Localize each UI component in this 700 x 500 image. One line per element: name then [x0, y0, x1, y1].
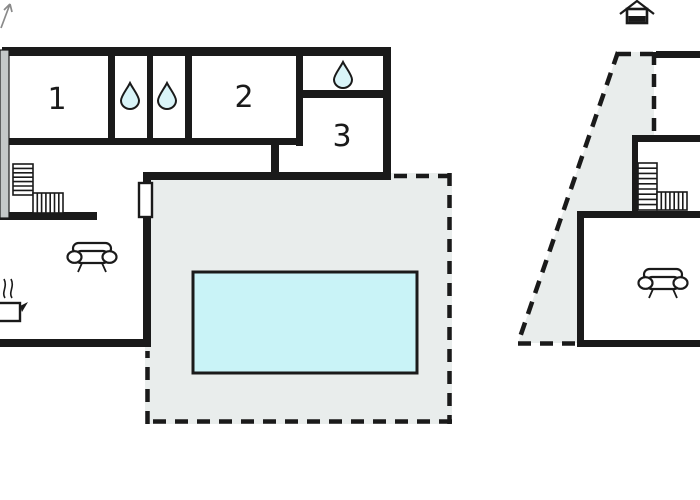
- swimming-pool: [193, 272, 417, 373]
- water-drop-icon: [334, 62, 352, 88]
- water-drop-icon: [158, 83, 176, 109]
- cooking-pot-icon: [0, 279, 28, 321]
- sofa-icon: [68, 243, 117, 272]
- water-drop-icon: [121, 83, 139, 109]
- cut-wall-strip: [0, 50, 9, 218]
- room-label-1: 1: [47, 85, 66, 115]
- sofa-icon: [639, 269, 688, 298]
- north-house-icon: [620, 1, 654, 23]
- staircase-icon: [638, 163, 687, 210]
- floor-plan-drawing: [0, 0, 700, 500]
- floor-plan-canvas: 1 2 3: [0, 0, 700, 500]
- upper-floor-plan: [518, 1, 700, 347]
- staircase-icon: [13, 164, 63, 213]
- north-arrow-icon: [1, 4, 12, 28]
- terrace-door: [139, 183, 152, 217]
- room-label-2: 2: [234, 83, 253, 113]
- ground-floor-plan: [0, 4, 452, 424]
- room-label-3: 3: [332, 122, 351, 152]
